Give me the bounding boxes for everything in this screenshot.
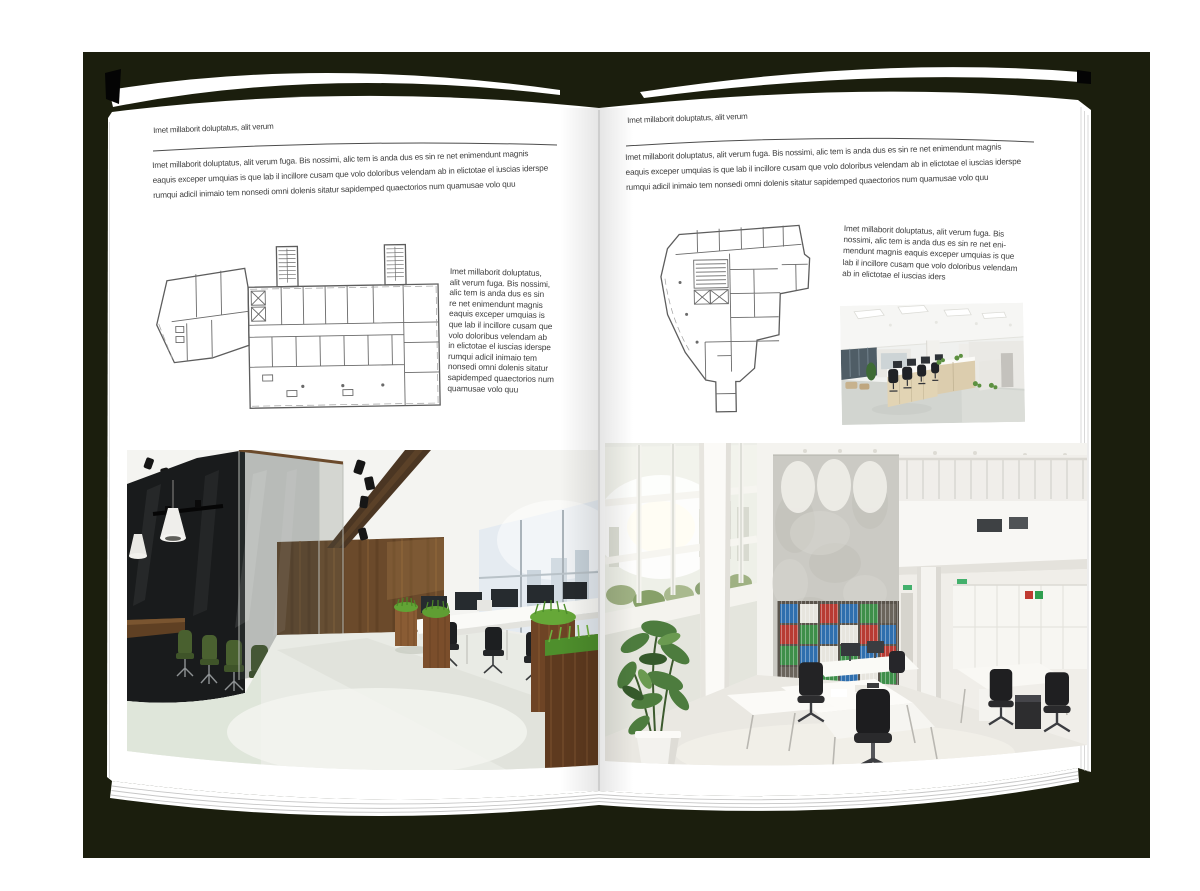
left-page-face: [112, 96, 599, 800]
right-spine-notch: [1077, 70, 1091, 84]
right-page-face: [599, 92, 1078, 796]
left-spine-notch: [105, 69, 121, 104]
spine-shadow-right: [599, 108, 633, 791]
magazine-mockup: Imet millaborit doluptatus, alit verum I…: [0, 0, 1200, 891]
spine-shadow-left: [560, 108, 599, 791]
